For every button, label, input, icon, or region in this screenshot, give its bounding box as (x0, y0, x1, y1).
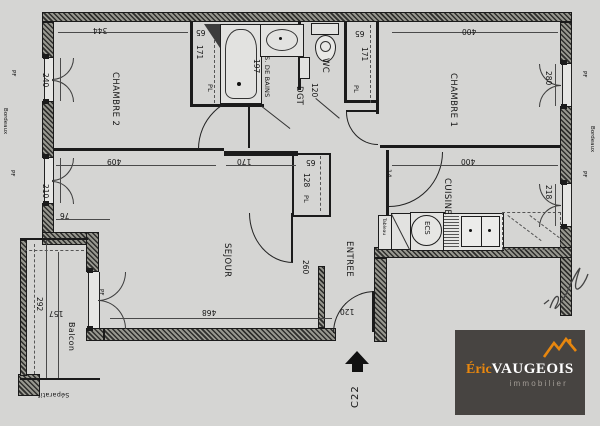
dim-pl-right-depth: 65 (355, 29, 365, 38)
brand-name: ÉricVAUGEOIS (466, 360, 574, 378)
exterior-wall-left-b (42, 101, 54, 158)
toilet-tank (311, 23, 339, 35)
window-post (561, 224, 567, 229)
dim-pl-right-width: 171 (360, 47, 369, 61)
wall-chambre2-bains (190, 22, 193, 106)
exterior-wall-left-a (42, 22, 54, 58)
exterior-wall-left-c (42, 203, 54, 235)
sejour-door-leaf (291, 213, 293, 262)
placard-center-label: PL (301, 195, 310, 203)
exterior-wall-right-a (560, 22, 572, 64)
room-label-balcon: Balcon (66, 322, 76, 351)
handwritten-mark (542, 256, 597, 318)
dim-cuisine-window: 218 (544, 185, 553, 199)
dim-line (46, 240, 47, 378)
street-label-right: Bordeaux (587, 126, 597, 152)
dim-balcon-width: 157 (49, 309, 63, 318)
chambre1-door-leaf (346, 110, 377, 112)
placard-right-front (370, 25, 371, 103)
brand-tagline: immobilier (510, 379, 568, 388)
sink-drain (469, 229, 472, 232)
wall-chambre1-left (376, 22, 379, 114)
wall-placard-right-bottom (344, 100, 377, 103)
dim-ch1-width: 400 (462, 27, 476, 36)
room-label-chambre1: CHAMBRE 1 (448, 73, 458, 127)
window-post (43, 54, 49, 59)
wall-sejour-top (224, 151, 298, 156)
dim-pl-center-width: 128 (302, 173, 311, 187)
balcony-bottom-line (20, 378, 100, 380)
casement-arc (52, 158, 74, 181)
window-post (87, 326, 93, 331)
cuisine-door-arc (389, 152, 443, 207)
toilet-seat (320, 41, 331, 52)
casement-arc (539, 85, 561, 107)
wc-door-leaf (315, 98, 339, 119)
wall-chambre1-cuisine (380, 145, 560, 148)
entrance-arrow-stem (352, 364, 363, 372)
washbasin-drain (279, 37, 282, 40)
roofline-icon (543, 336, 579, 360)
dim-ch2-width: 344 (93, 26, 107, 35)
exterior-wall-bottom-sejour (104, 328, 336, 341)
brand-last: VAUGEOIS (492, 361, 574, 377)
window-post (43, 154, 49, 159)
floor-plan: CHAMBRE 2 CHAMBRE 1 SEJOUR ENTREE CUISIN… (0, 0, 600, 426)
balcony-rail-left (20, 240, 27, 376)
bathtub-drain (237, 82, 241, 86)
dim-line (60, 158, 61, 203)
sink-drain (488, 229, 491, 232)
sejour-door-arc (249, 213, 293, 263)
window-type-label: PF (8, 70, 17, 76)
dim-sejour-top: 170 (237, 157, 251, 166)
separatif-label: Séparatif (38, 390, 69, 399)
window-type-label: PF (7, 170, 16, 176)
dim-pl-center-depth: 65 (306, 158, 316, 167)
casement-arc (52, 181, 74, 204)
room-label-salle-de-bains: S. DE BAINS (262, 56, 272, 97)
room-label-dgt: DGT (294, 86, 304, 105)
window-post (561, 104, 567, 109)
dim-pl-left-depth: 65 (196, 28, 206, 37)
window-post (87, 268, 93, 273)
dim-cuisine-wall: 14 (384, 169, 393, 178)
dim-sejour-window: 210 (41, 184, 50, 198)
casement-arc (52, 58, 74, 80)
water-heater-label: ECS (422, 221, 431, 235)
room-label-chambre2: CHAMBRE 2 (110, 72, 120, 126)
entrance-arrow-icon (345, 351, 369, 364)
dim-door-width: 120 (340, 307, 354, 316)
dim-sejour-offset: 76 (60, 211, 70, 220)
window-post (561, 60, 567, 65)
balcony-door-arc (98, 272, 126, 301)
dim-pl-left-width: 171 (195, 45, 204, 59)
wc-handbasin (299, 57, 310, 79)
room-label-wc: WC (320, 58, 330, 73)
wall-wc-placard (344, 22, 347, 102)
washbasin (266, 29, 298, 51)
brand-first: Éric (466, 362, 492, 377)
dim-line (58, 32, 188, 33)
window-type-label: PF (579, 71, 588, 77)
balcony-door-arc (98, 300, 126, 329)
electrical-panel-label: Tableau (379, 218, 388, 235)
exterior-wall-right-b (560, 106, 572, 184)
chambre1-door-arc (346, 112, 378, 145)
room-label-cuisine: CUISINE (442, 178, 452, 215)
dim-ch2-window: 240 (41, 73, 50, 87)
window-post (561, 180, 567, 185)
unit-number: C22 (351, 385, 361, 408)
dim-balcon-length: 292 (35, 297, 44, 311)
room-label-sejour: SEJOUR (222, 243, 232, 278)
dim-sejour-length: 409 (107, 157, 121, 166)
front-door-leaf (372, 291, 374, 332)
balcony-dashed-top (24, 250, 84, 251)
dim-bains-width: 197 (252, 59, 261, 73)
dim-cuisine-width: 400 (461, 157, 475, 166)
placard-center-front (320, 156, 321, 211)
agency-logo: ÉricVAUGEOIS immobilier (455, 330, 585, 415)
window-post (43, 99, 49, 104)
placard-right-label: PL (351, 85, 360, 93)
corner-shelf (204, 24, 220, 48)
dim-line (555, 64, 556, 106)
street-label-left: Bordeaux (0, 108, 10, 134)
dim-entree-width: 260 (301, 260, 310, 274)
dim-dgt-width: 120 (310, 83, 319, 97)
dim-ch1-window: 280 (544, 71, 553, 85)
entree-right-wall (374, 258, 387, 342)
window-type-label: PF (96, 289, 105, 295)
window-type-label: PF (579, 171, 588, 177)
placard-left-label: PL (205, 84, 214, 92)
room-label-entree: ENTREE (344, 241, 354, 277)
balcony-top-line (20, 238, 88, 240)
sink-drainboard (444, 214, 459, 247)
exterior-wall-top (42, 12, 572, 22)
window-chambre1 (562, 64, 572, 106)
dim-line (110, 318, 332, 319)
dim-line (56, 165, 216, 166)
casement-arc (52, 80, 74, 102)
dim-sejour-bottom: 468 (202, 308, 216, 317)
dim-line (60, 58, 61, 101)
bains-door-leaf (261, 106, 290, 129)
window-cuisine (562, 184, 572, 226)
window-post (43, 201, 49, 206)
